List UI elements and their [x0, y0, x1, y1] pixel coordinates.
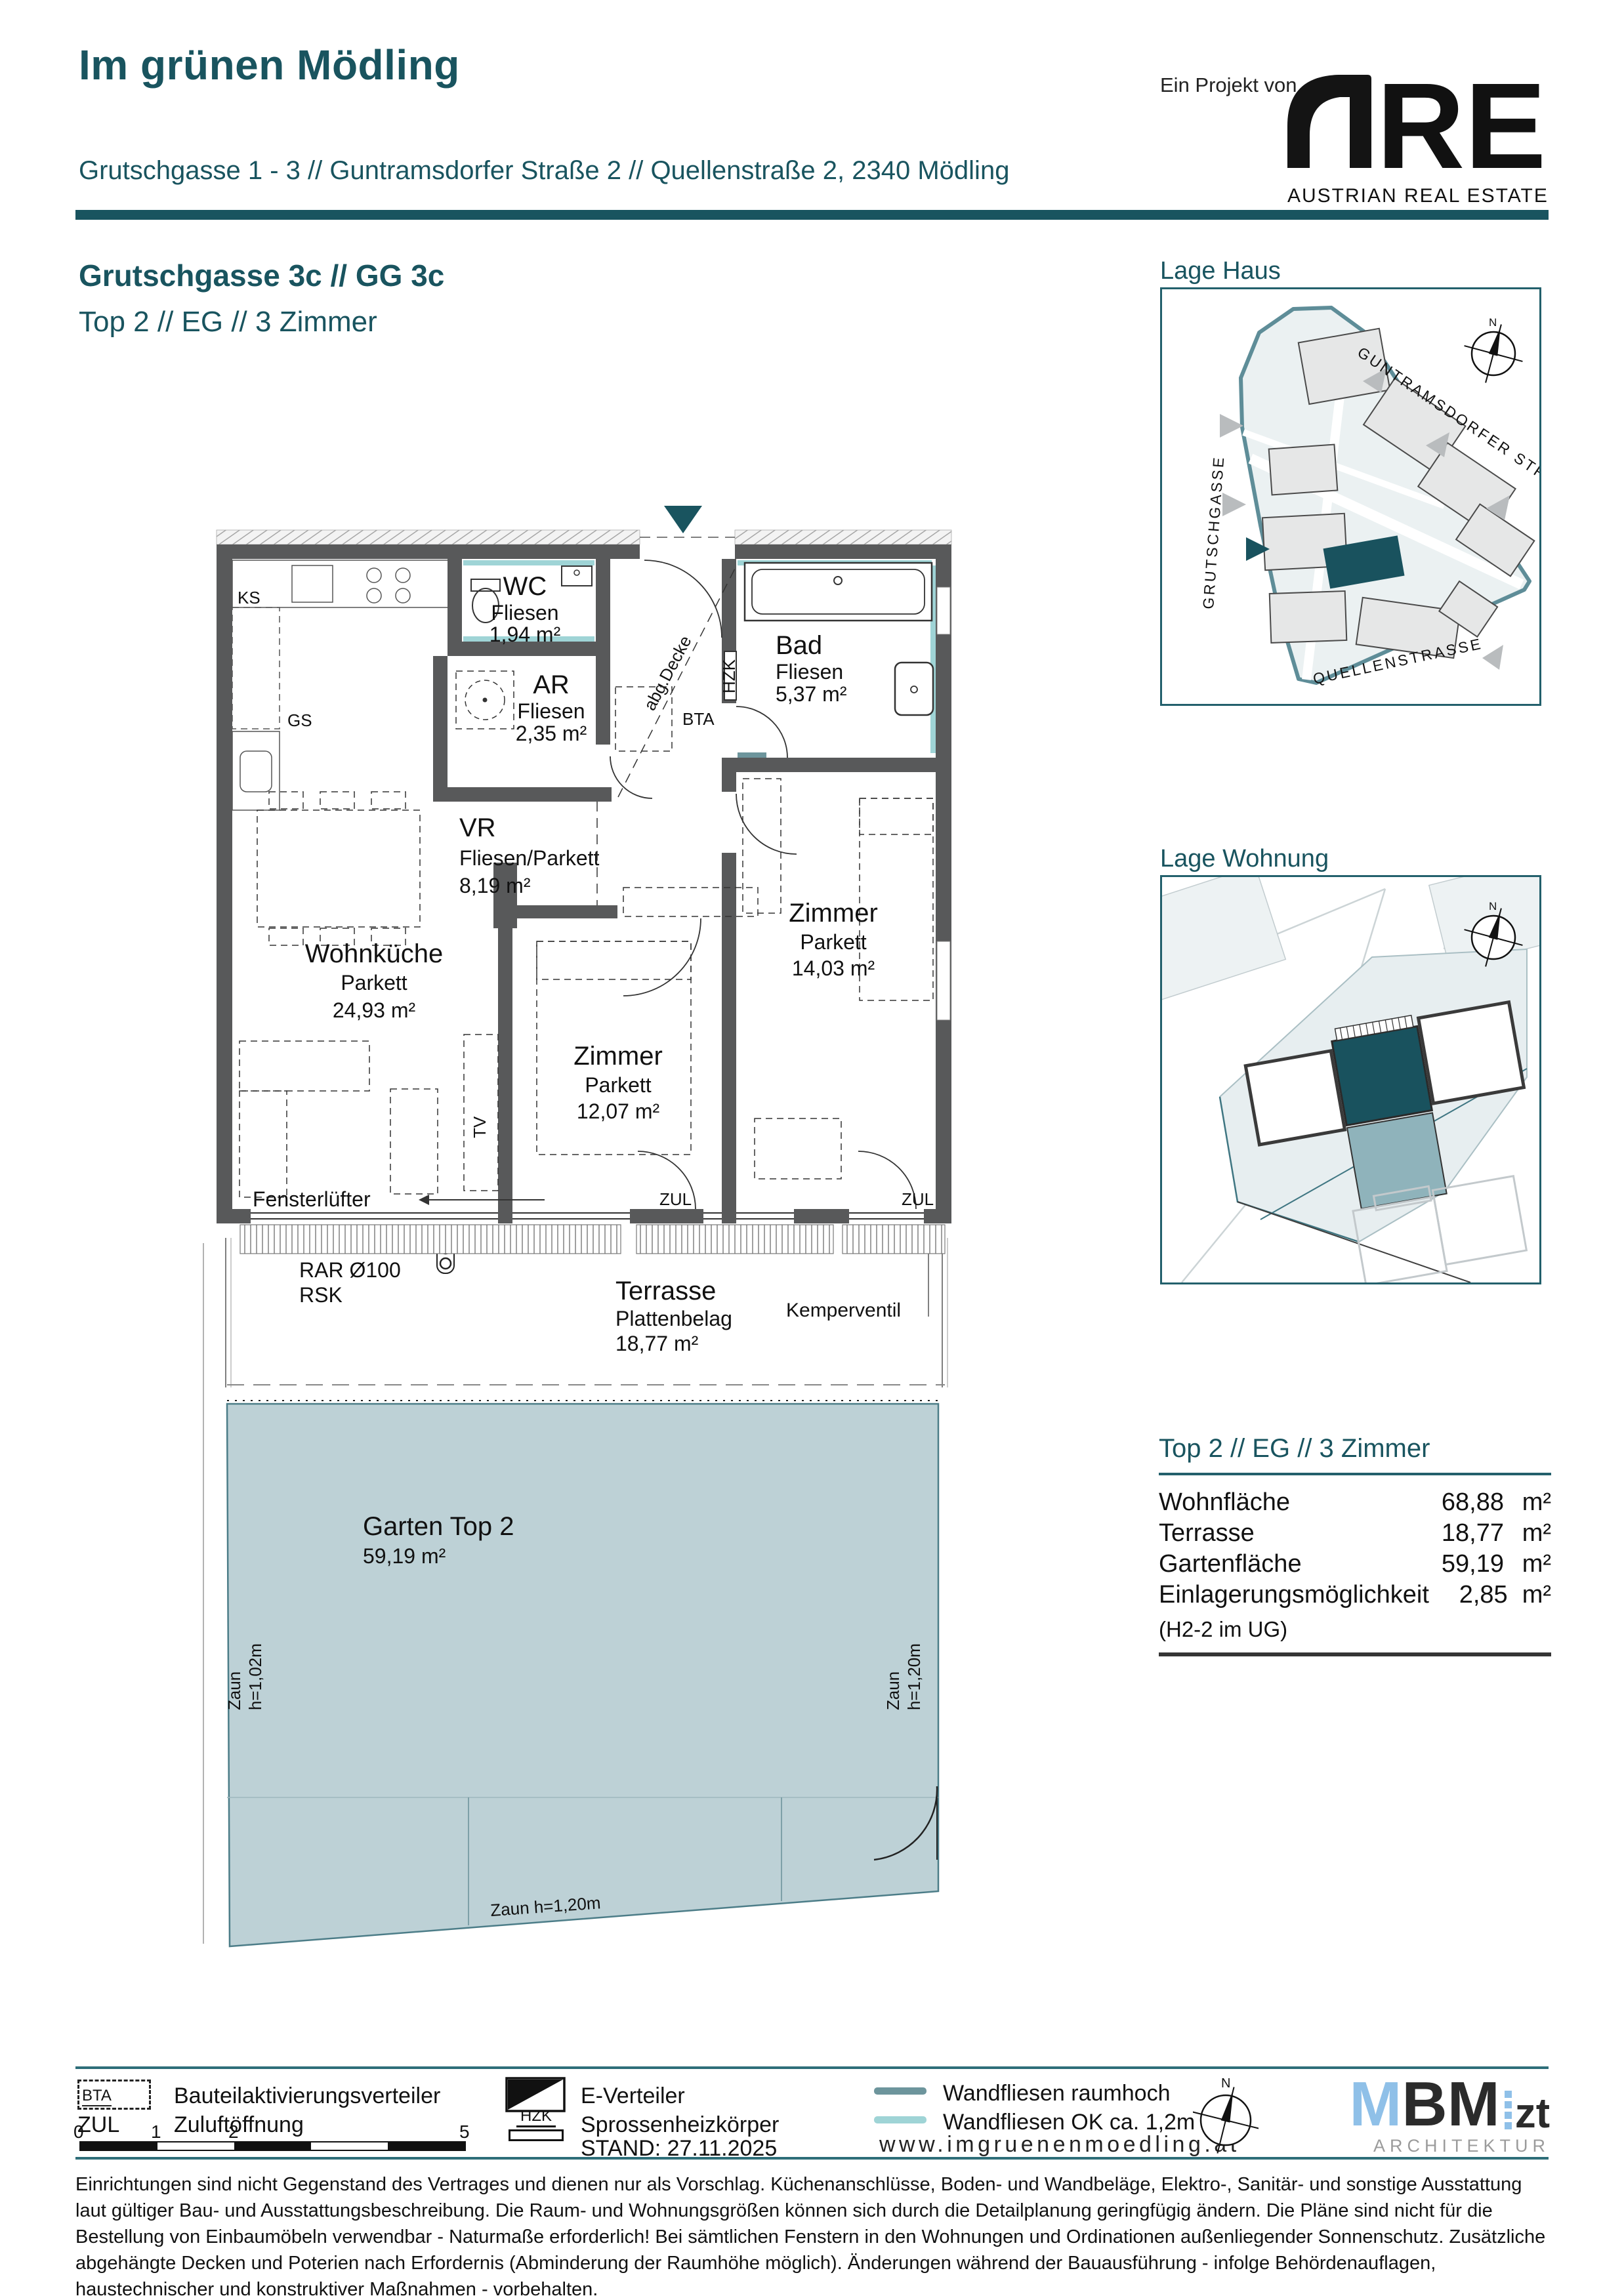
project-note: Ein Projekt von [1160, 73, 1297, 97]
z2-wardrobe [743, 779, 781, 913]
summary-title: Top 2 // EG // 3 Zimmer [1159, 1434, 1551, 1475]
row-unit: m² [1508, 1580, 1551, 1610]
table-end-rule [1159, 1652, 1551, 1656]
zul-tag-2: ZUL [902, 1189, 934, 1209]
room-vr: VR Fliesen/Parkett 8,19 m² [459, 802, 600, 905]
ar-area: 2,35 m² [516, 722, 587, 745]
page-title: Im grünen Mödling [79, 41, 460, 89]
garden-area: Garten Top 2 59,19 m² Zaun h=1,02m Zaun … [224, 1404, 938, 1946]
scale-tick-1: 1 [151, 2122, 161, 2142]
mbm-architekt-logo: M BM zt ARCHITEKTUR [1343, 2077, 1550, 2156]
slide-arrow-icon [419, 1195, 429, 1205]
are-re-text: RE [1377, 68, 1546, 194]
compass-icon: N [1457, 316, 1531, 390]
wohnkueche-area: 24,93 m² [333, 998, 416, 1022]
hzk-abbr: HZK [516, 2107, 556, 2127]
footer-rule-bottom [75, 2157, 1549, 2160]
row-value: 18,77 [1419, 1518, 1504, 1549]
are-arch-icon [1287, 75, 1371, 168]
kitchen-tall-units [232, 607, 280, 729]
hzk-tag: HZK [719, 659, 739, 693]
ks-tag: KS [238, 588, 260, 607]
room-zimmer2: Zimmer Parkett 14,03 m² ZUL [736, 779, 934, 1209]
kemperventil-label: Kemperventil [786, 1300, 901, 1321]
kitchen-counter [232, 560, 449, 607]
mbm-zt: zt [1515, 2095, 1550, 2133]
garden-area-value: 59,19 m² [363, 1544, 446, 1568]
bta-legend-label: Bauteilaktivierungsverteiler [174, 2083, 440, 2109]
table-row: Gartenfläche 59,19 m² [1159, 1549, 1551, 1580]
are-subtitle: AUSTRIAN REAL ESTATE [1287, 185, 1549, 207]
zimmer2-area: 14,03 m² [792, 956, 875, 980]
entry-arrow-icon [664, 506, 702, 533]
rsk-label: RSK [299, 1283, 343, 1307]
mbm-colon-icon [1505, 2091, 1512, 2129]
tv-board [464, 1035, 498, 1191]
wc-sink-icon [562, 566, 592, 586]
scale-bar [79, 2141, 466, 2151]
tiles-full-label: Wandfliesen raumhoch [943, 2081, 1170, 2106]
unit-garden [1347, 1113, 1447, 1208]
unit-summary-table: Top 2 // EG // 3 Zimmer Wohnfläche 68,88… [1159, 1434, 1551, 1656]
row-value: 59,19 [1419, 1549, 1504, 1580]
fence-right-height: h=1,20m [904, 1643, 924, 1710]
zul-abbr: ZUL [77, 2112, 119, 2138]
bad-sink-icon [895, 663, 933, 715]
kitchen-lower-units [232, 731, 280, 810]
row-label: Terrasse [1159, 1518, 1419, 1549]
bta-tag: BTA [682, 709, 715, 729]
mbm-bm: BM [1402, 2077, 1499, 2132]
dining-table [257, 792, 420, 945]
row-unit: m² [1504, 1518, 1551, 1549]
building-title: Grutschgasse 3c // GG 3c [79, 258, 444, 293]
entry-vestibule: abg.Decke BTA [610, 560, 736, 798]
row-value: 68,88 [1419, 1487, 1504, 1518]
z1-wardrobe [623, 888, 758, 916]
table-row: Einlagerungsmöglichkeit 2,85 m² [1159, 1580, 1551, 1610]
bta-legend-icon: BTA [77, 2080, 151, 2110]
tiles-full-swatch [874, 2087, 927, 2095]
unit-title: Top 2 // EG // 3 Zimmer [79, 306, 377, 338]
e-verteiler-label: E-Verteiler [581, 2083, 685, 2109]
terrace-label: Terrasse [615, 1277, 716, 1305]
lage-wohnung-title: Lage Wohnung [1160, 845, 1329, 873]
zimmer2-label: Zimmer [789, 899, 878, 928]
z2-door-arc [736, 794, 797, 854]
window-right-1 [937, 587, 950, 634]
right-wing [1419, 1002, 1524, 1103]
are-logo: RE AUSTRIAN REAL ESTATE [1286, 68, 1550, 209]
lage-wohnung-map: N [1160, 875, 1541, 1284]
rar-label: RAR Ø100 [299, 1258, 401, 1282]
vr-finish: Fliesen/Parkett [459, 846, 600, 870]
project-address: Grutschgasse 1 - 3 // Guntramsdorfer Str… [79, 156, 1009, 186]
sofa [239, 1041, 438, 1197]
ar-finish: Fliesen [517, 699, 585, 723]
ar-door-arc [610, 756, 652, 798]
gs-tag: GS [287, 710, 312, 730]
bad-label: Bad [776, 631, 822, 660]
bad-finish: Fliesen [776, 660, 843, 684]
scale-tick-2: 2 [228, 2122, 239, 2142]
compass-n-2: N [1489, 900, 1497, 912]
tiles-half-swatch [874, 2116, 927, 2123]
street-grutschgasse: GRUTSCHGASSE [1199, 455, 1227, 609]
disclaimer-text: Einrichtungen sind nicht Gegenstand des … [75, 2171, 1553, 2296]
z2-desk [755, 1118, 841, 1179]
room-wc: WC Fliesen 1,94 m² [463, 560, 594, 646]
scale-tick-0: 0 [73, 2122, 84, 2142]
row-label: Wohnfläche [1159, 1487, 1419, 1518]
zimmer1-finish: Parkett [585, 1073, 651, 1097]
lage-haus-title: Lage Haus [1160, 257, 1281, 285]
highlighted-unit [1332, 1026, 1432, 1125]
bathtub-icon [745, 563, 932, 621]
row-label: Gartenfläche [1159, 1549, 1419, 1580]
zul-tag-1: ZUL [659, 1189, 692, 1209]
roof-band-left [217, 530, 640, 544]
footer-rule-top [75, 2066, 1549, 2069]
zimmer2-finish: Parkett [800, 930, 866, 954]
fensterluefter-label: Fensterlüfter [253, 1187, 371, 1211]
bad-door-arc [736, 707, 787, 758]
zimmer1-label: Zimmer [573, 1042, 663, 1071]
fence-left-height: h=1,02m [245, 1643, 265, 1710]
wohnkueche-finish: Parkett [341, 971, 407, 994]
hzk-legend-label: Sprossenheizkörper [581, 2112, 779, 2138]
terrace-area-value: 18,77 m² [615, 1332, 699, 1355]
wc-label: WC [503, 572, 547, 601]
fence-right-label: Zaun [883, 1671, 903, 1710]
roof-band-right [735, 530, 951, 544]
vr-area: 8,19 m² [459, 874, 531, 897]
table-row: Terrasse 18,77 m² [1159, 1518, 1551, 1549]
room-ar: AR Fliesen 2,35 m² [456, 670, 587, 745]
wc-area: 1,94 m² [489, 623, 561, 646]
row-value: 2,85 [1429, 1580, 1508, 1610]
window-right-2 [937, 941, 950, 1020]
compass-n: N [1489, 316, 1497, 329]
garden-label: Garten Top 2 [363, 1512, 514, 1541]
storage-note: (H2-2 im UG) [1159, 1617, 1551, 1642]
wc-finish: Fliesen [491, 601, 558, 625]
fence-left-label: Zaun [224, 1671, 244, 1710]
scale-tick-5: 5 [459, 2122, 470, 2142]
mbm-m: M [1349, 2077, 1402, 2132]
room-bad: HZK Bad Fliesen 5,37 m² [719, 560, 936, 758]
row-unit: m² [1504, 1487, 1551, 1518]
table-row: Wohnfläche 68,88 m² [1159, 1487, 1551, 1518]
wohnkueche-label: Wohnküche [305, 939, 444, 968]
floor-plan: Garten Top 2 59,19 m² Zaun h=1,02m Zaun … [177, 495, 991, 2004]
plan-sheet: Im grünen Mödling Grutschgasse 1 - 3 // … [0, 0, 1624, 2296]
tv-tag: TV [470, 1116, 489, 1138]
terrace-finish: Plattenbelag [615, 1307, 732, 1330]
bta-abbr: BTA [82, 2087, 112, 2106]
entry-door-arc [644, 560, 722, 638]
header-divider-bar [75, 210, 1549, 220]
vr-label: VR [459, 813, 496, 842]
hzk-legend-icon: HZK [509, 2107, 564, 2141]
row-unit: m² [1504, 1549, 1551, 1580]
left-wing [1245, 1051, 1344, 1145]
website-link[interactable]: www.imgruenenmoedling.at [879, 2132, 1240, 2158]
footer-compass-icon: N [1193, 2076, 1259, 2154]
zimmer1-area: 12,07 m² [577, 1099, 660, 1123]
footer-compass-n: N [1221, 2076, 1230, 2091]
ar-label: AR [533, 670, 570, 699]
zul-legend-label: Zuluftöffnung [174, 2112, 304, 2138]
lage-haus-map: GUNTRAMSDORFER STRASSE GRUTSCHGASSE QUEL… [1160, 287, 1541, 706]
z1-door-arc [623, 918, 701, 996]
mbm-subtitle: ARCHITEKTUR [1343, 2136, 1550, 2156]
row-label: Einlagerungsmöglichkeit [1159, 1580, 1429, 1610]
kitchen-sink-icon [292, 565, 333, 602]
bad-area: 5,37 m² [776, 682, 847, 706]
